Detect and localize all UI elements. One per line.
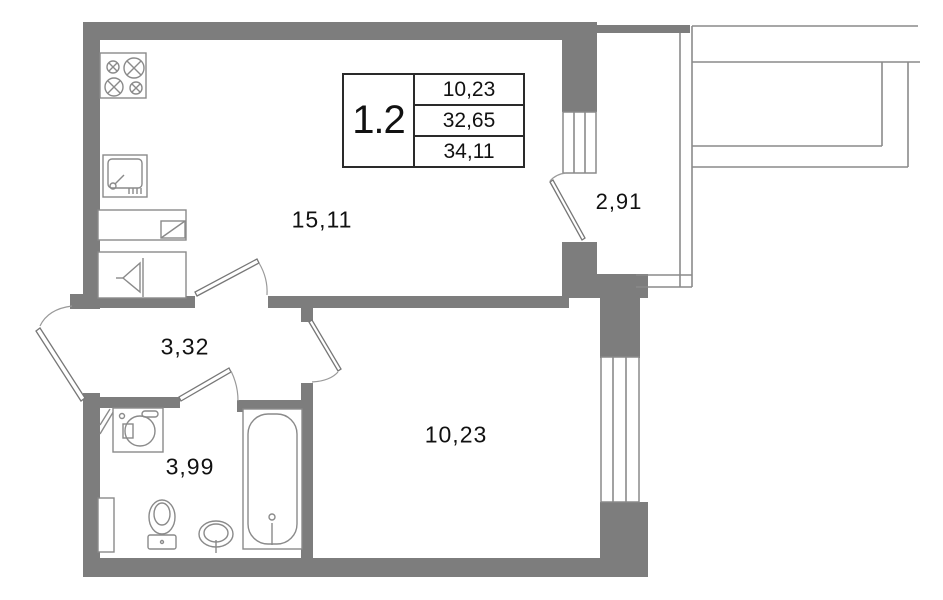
unit-info-table: 1.2 10,23 32,65 34,11 bbox=[342, 73, 525, 168]
bedroom-area-label: 10,23 bbox=[425, 422, 488, 449]
hallway-area-label: 3,32 bbox=[161, 334, 210, 361]
washbasin-icon bbox=[199, 521, 233, 553]
counter-icon bbox=[98, 210, 186, 240]
unit-areas: 10,23 32,65 34,11 bbox=[415, 75, 523, 166]
balcony-door bbox=[550, 173, 585, 240]
living-room-door bbox=[195, 259, 267, 296]
washing-machine-icon bbox=[113, 408, 163, 452]
bathroom-door bbox=[179, 368, 238, 401]
neighbour-balcony-outline bbox=[692, 26, 920, 167]
living-room-window bbox=[563, 112, 596, 173]
bedroom-door bbox=[309, 320, 341, 382]
kitchen-sink-icon bbox=[103, 155, 147, 197]
balcony-railing bbox=[636, 26, 692, 287]
bathroom-area-label: 3,99 bbox=[166, 454, 215, 481]
bathtub-icon bbox=[243, 409, 302, 549]
unit-living-area: 10,23 bbox=[415, 75, 523, 106]
toilet-icon bbox=[148, 500, 176, 549]
living-kitchen-area-label: 15,11 bbox=[292, 207, 353, 234]
duct-box bbox=[98, 498, 114, 552]
vent-funnel-icon bbox=[98, 252, 186, 298]
entrance-door bbox=[36, 306, 85, 401]
unit-total-area: 34,11 bbox=[415, 137, 523, 166]
balcony-area-label: 2,91 bbox=[596, 189, 643, 215]
unit-number: 1.2 bbox=[344, 75, 415, 166]
unit-area: 32,65 bbox=[415, 106, 523, 137]
bedroom-window bbox=[601, 357, 639, 502]
stove-icon bbox=[100, 53, 146, 98]
floor-plan: 1.2 10,23 32,65 34,11 15,11 3,32 3,99 10… bbox=[0, 0, 943, 600]
